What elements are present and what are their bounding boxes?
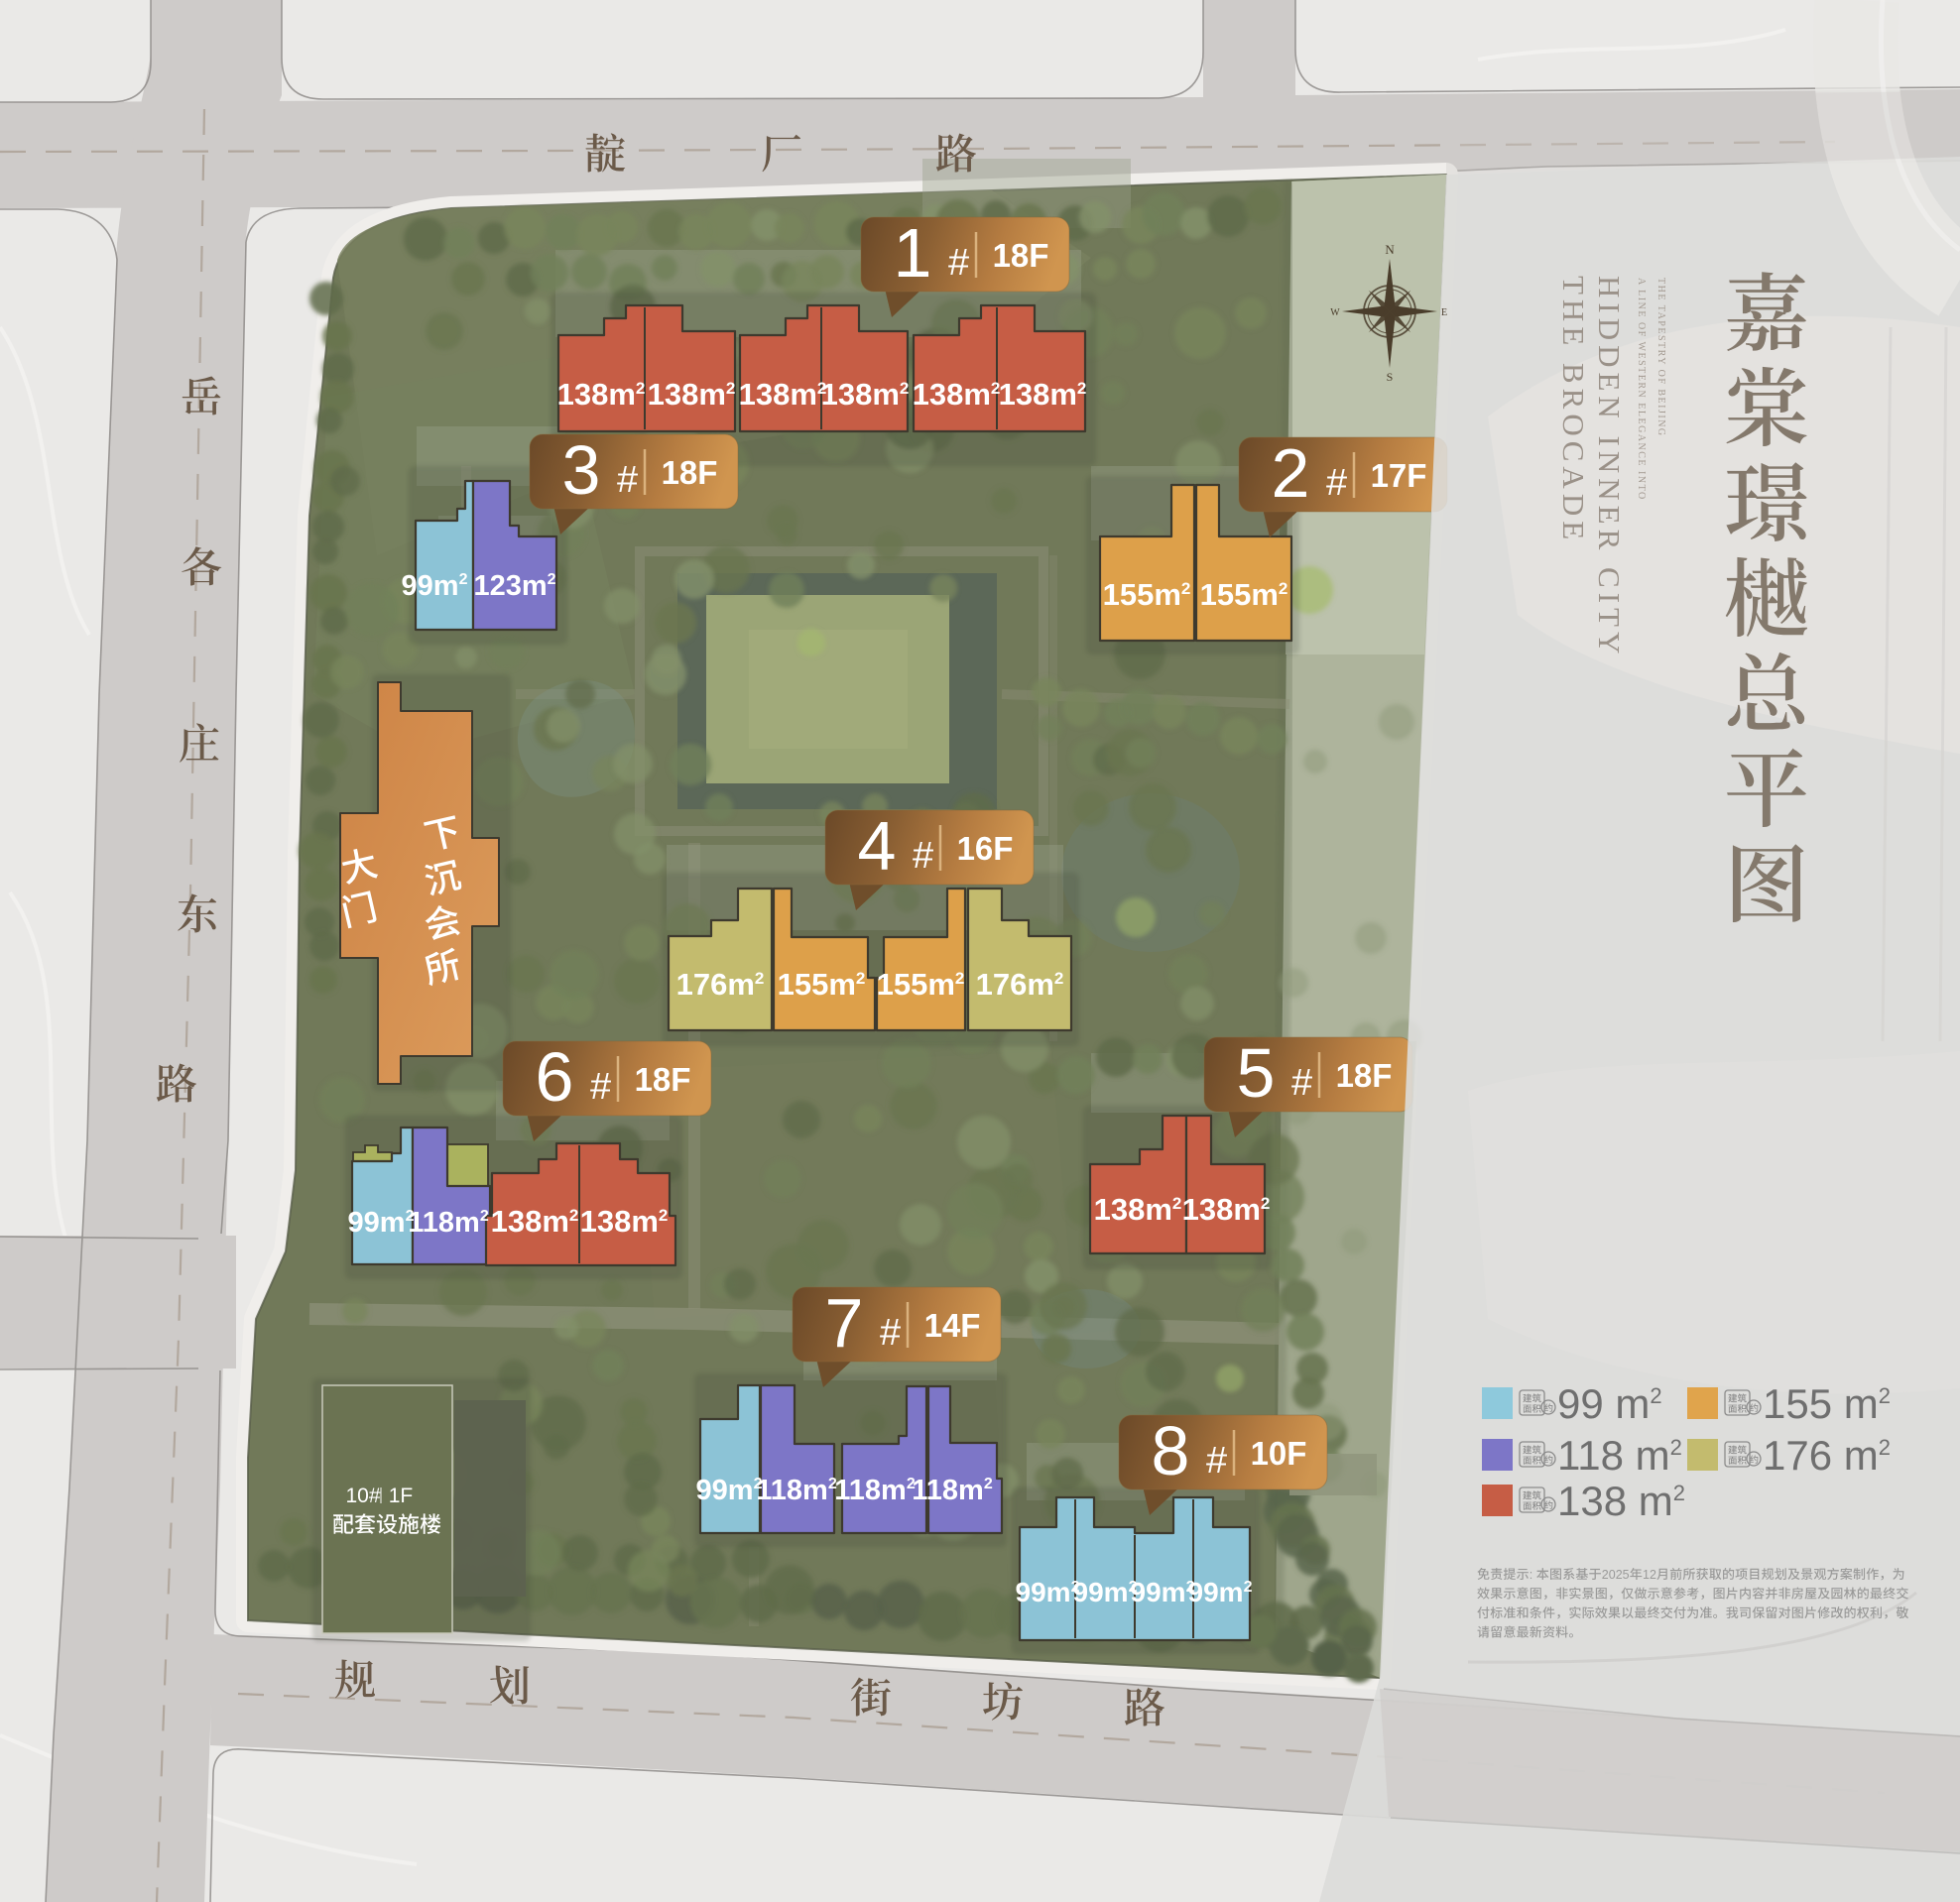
svg-text:#: # bbox=[1206, 1440, 1227, 1482]
svg-text:2: 2 bbox=[1272, 434, 1310, 512]
svg-text:#: # bbox=[590, 1066, 611, 1108]
svg-text:6: 6 bbox=[536, 1038, 574, 1116]
svg-text:99m2: 99m2 bbox=[348, 1207, 415, 1239]
svg-text:99m2: 99m2 bbox=[402, 570, 468, 602]
svg-text:10#: 10# bbox=[345, 1485, 380, 1507]
svg-text:176 m2: 176 m2 bbox=[1763, 1432, 1891, 1479]
svg-text:16F: 16F bbox=[957, 830, 1014, 867]
svg-text:#: # bbox=[617, 459, 638, 501]
svg-text:3: 3 bbox=[562, 431, 601, 509]
svg-text:138 m2: 138 m2 bbox=[1557, 1478, 1685, 1524]
svg-text:18F: 18F bbox=[662, 454, 718, 491]
svg-text:A LINE OF WESTERN ELEGANCE INT: A LINE OF WESTERN ELEGANCE INTO bbox=[1636, 278, 1647, 501]
svg-text:138m2: 138m2 bbox=[821, 377, 910, 412]
svg-text:99m2: 99m2 bbox=[1131, 1577, 1195, 1607]
svg-text:138m2: 138m2 bbox=[913, 377, 1001, 412]
svg-text:155 m2: 155 m2 bbox=[1763, 1380, 1891, 1427]
svg-text:8: 8 bbox=[1152, 1412, 1190, 1489]
svg-text:12: 12 bbox=[1643, 1568, 1656, 1582]
svg-text:#: # bbox=[1326, 462, 1347, 504]
svg-text:#: # bbox=[1291, 1062, 1312, 1104]
svg-text:176m2: 176m2 bbox=[976, 967, 1064, 1002]
svg-text:N: N bbox=[1385, 242, 1395, 257]
svg-text:HIDDEN INNER CITY: HIDDEN INNER CITY bbox=[1592, 276, 1627, 658]
svg-text:138m2: 138m2 bbox=[648, 377, 736, 412]
svg-text:155m2: 155m2 bbox=[778, 967, 866, 1002]
svg-text:155m2: 155m2 bbox=[1200, 577, 1288, 612]
svg-text:99m2: 99m2 bbox=[1188, 1577, 1253, 1607]
svg-text:1F: 1F bbox=[389, 1485, 414, 1507]
svg-text:138m2: 138m2 bbox=[739, 377, 827, 412]
svg-text:THE BROCADE: THE BROCADE bbox=[1556, 276, 1591, 544]
svg-text:#: # bbox=[948, 242, 969, 284]
svg-text:155m2: 155m2 bbox=[877, 967, 965, 1002]
svg-text:18F: 18F bbox=[1336, 1057, 1393, 1094]
svg-text:7: 7 bbox=[825, 1284, 864, 1362]
svg-text:123m2: 123m2 bbox=[473, 570, 555, 602]
svg-text:#: # bbox=[913, 835, 933, 877]
svg-text:4: 4 bbox=[858, 807, 897, 885]
svg-text:17F: 17F bbox=[1371, 457, 1427, 494]
svg-text:138m2: 138m2 bbox=[580, 1204, 669, 1239]
svg-text:99 m2: 99 m2 bbox=[1557, 1380, 1662, 1427]
svg-text:99m2: 99m2 bbox=[1016, 1577, 1080, 1607]
svg-text:10F: 10F bbox=[1251, 1435, 1307, 1472]
svg-text:99m2: 99m2 bbox=[696, 1475, 763, 1506]
svg-text:155m2: 155m2 bbox=[1103, 577, 1191, 612]
svg-text:THE TAPESTRY OF BEIJING: THE TAPESTRY OF BEIJING bbox=[1655, 278, 1666, 437]
svg-text:138m2: 138m2 bbox=[999, 377, 1087, 412]
svg-text:176m2: 176m2 bbox=[676, 967, 765, 1002]
svg-text:138m2: 138m2 bbox=[1094, 1192, 1182, 1227]
svg-text:S: S bbox=[1387, 370, 1394, 384]
svg-text:118m2: 118m2 bbox=[834, 1475, 916, 1506]
svg-text:5: 5 bbox=[1237, 1034, 1276, 1112]
svg-text:118m2: 118m2 bbox=[912, 1475, 993, 1506]
svg-text:#: # bbox=[880, 1312, 901, 1354]
svg-text:118m2: 118m2 bbox=[756, 1475, 837, 1506]
svg-text:138m2: 138m2 bbox=[1182, 1192, 1271, 1227]
svg-text:W: W bbox=[1330, 307, 1340, 318]
svg-text:138m2: 138m2 bbox=[491, 1204, 579, 1239]
svg-text:99m2: 99m2 bbox=[1073, 1577, 1138, 1607]
svg-text:14F: 14F bbox=[924, 1307, 981, 1344]
svg-text:138m2: 138m2 bbox=[557, 377, 646, 412]
svg-text::: : bbox=[1530, 1568, 1532, 1582]
svg-text:118 m2: 118 m2 bbox=[1557, 1432, 1682, 1479]
svg-text:18F: 18F bbox=[635, 1061, 691, 1098]
svg-text:2025: 2025 bbox=[1602, 1568, 1630, 1582]
svg-text:118m2: 118m2 bbox=[408, 1207, 489, 1239]
svg-text:1: 1 bbox=[894, 214, 932, 292]
svg-text:18F: 18F bbox=[993, 237, 1049, 274]
svg-text:E: E bbox=[1441, 307, 1447, 318]
